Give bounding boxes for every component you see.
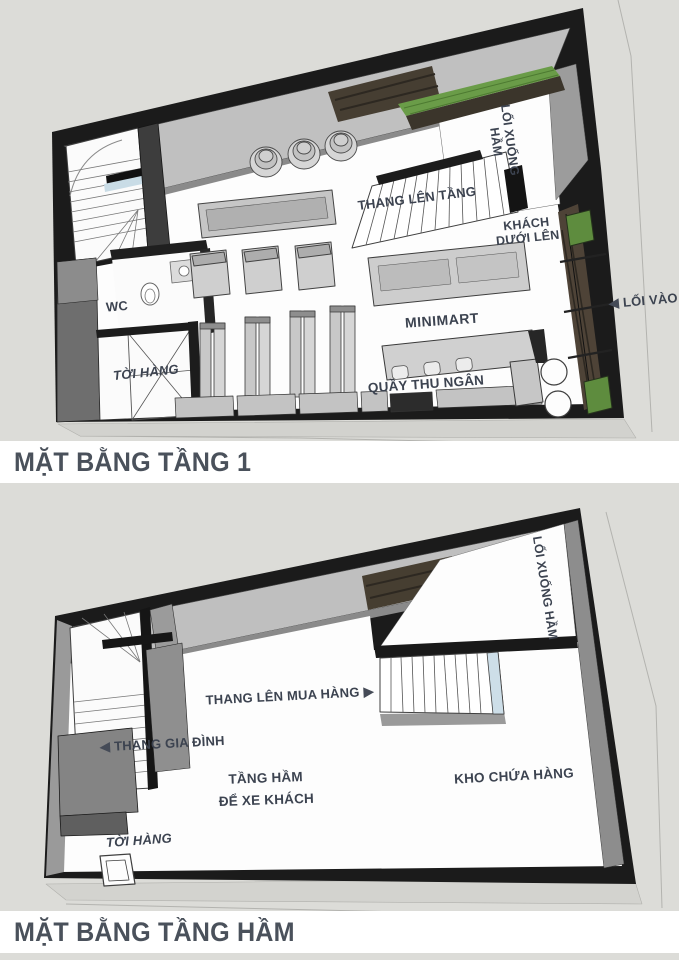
floor1-title: MẶT BẰNG TẦNG 1 <box>14 447 251 478</box>
floor1-title-band: MẶT BẰNG TẦNG 1 <box>0 441 679 483</box>
floor1-family-stair <box>66 123 170 266</box>
left-arrow-icon: ◀ <box>608 294 620 311</box>
label-line: ĐỂ XE KHÁCH <box>218 787 314 812</box>
basement-title: MẶT BẰNG TẦNG HẦM <box>14 917 295 948</box>
label-tang-ham-de-xe-khach: TẦNG HẦM ĐỂ XE KHÁCH <box>218 766 315 812</box>
goods-lift-door <box>100 854 135 886</box>
shop-stair <box>380 652 506 726</box>
right-arrow-icon: ▶ <box>363 683 375 700</box>
page: LỐI XUỐNG HẦM THANG LÊN TẦNG KHÁCH DƯỚI … <box>0 0 679 960</box>
basement-drawing <box>44 508 662 918</box>
basement-title-band: MẶT BẰNG TẦNG HẦM <box>0 911 679 953</box>
left-arrow-icon: ◀ <box>99 738 111 755</box>
label-line: TẦNG HẦM <box>218 766 314 791</box>
label-wc: WC <box>105 299 128 315</box>
